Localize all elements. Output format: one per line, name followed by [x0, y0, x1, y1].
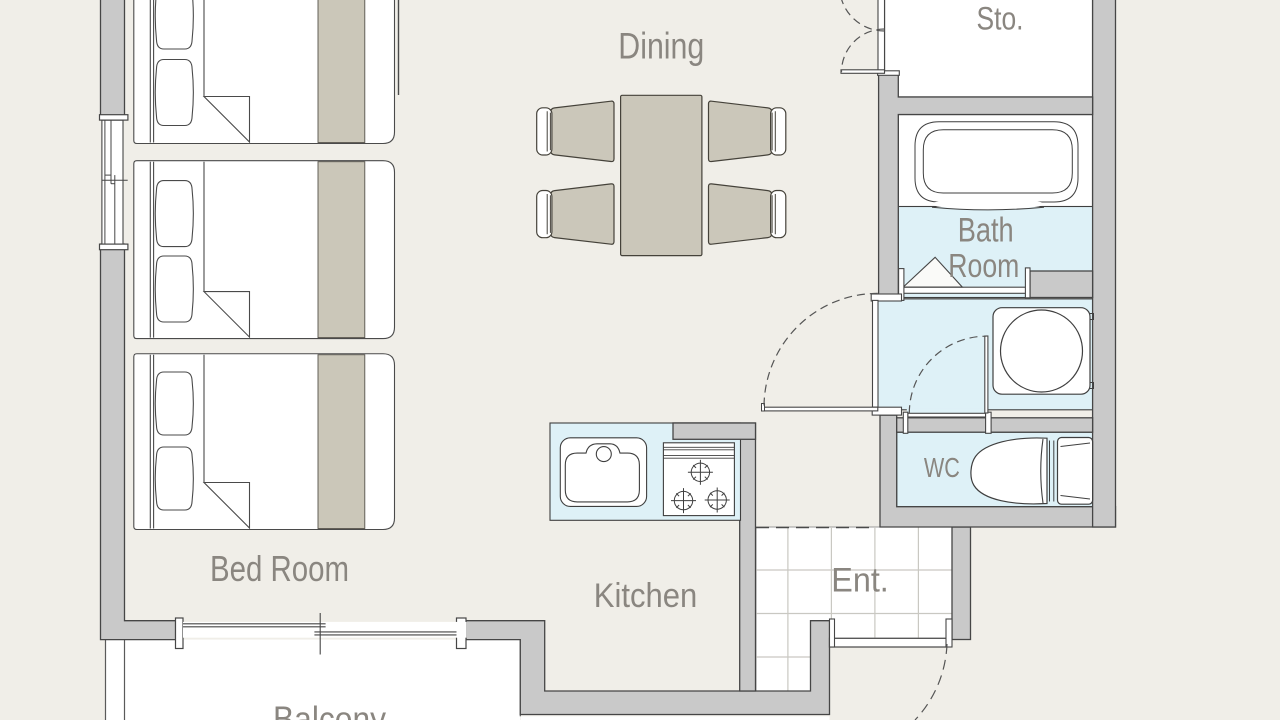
svg-text:Dining: Dining: [618, 25, 704, 66]
svg-text:Room: Room: [948, 247, 1019, 284]
svg-text:WC: WC: [924, 452, 960, 483]
svg-text:Sto.: Sto.: [977, 1, 1024, 37]
svg-text:Kitchen: Kitchen: [594, 577, 698, 615]
svg-text:Ent.: Ent.: [831, 562, 889, 600]
svg-text:Bath: Bath: [958, 212, 1014, 250]
svg-text:Bed Room: Bed Room: [210, 548, 349, 589]
svg-text:Balcony: Balcony: [273, 700, 386, 720]
